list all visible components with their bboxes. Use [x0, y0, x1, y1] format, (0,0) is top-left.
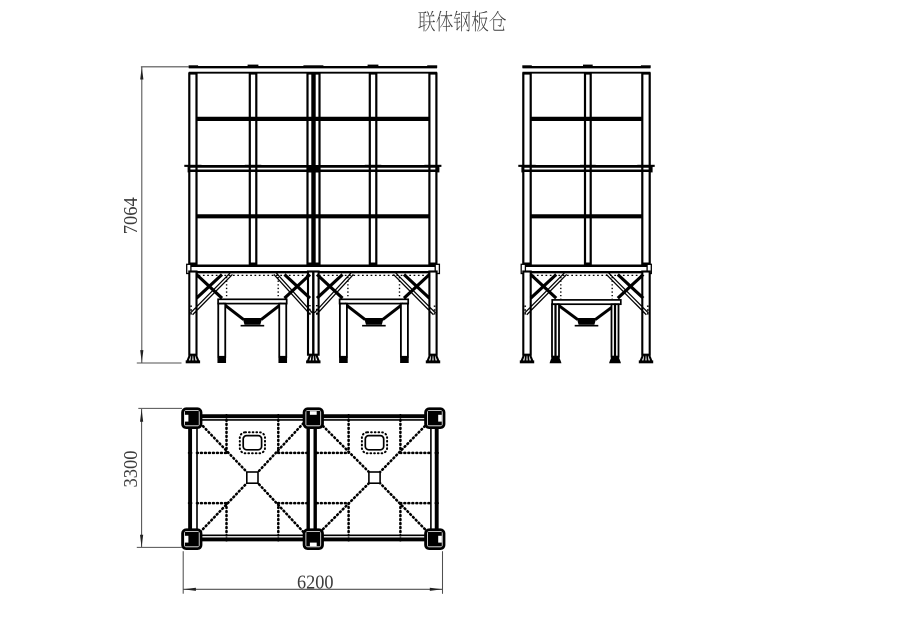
svg-text:6200: 6200 — [297, 571, 334, 593]
svg-text:7064: 7064 — [120, 197, 142, 234]
svg-text:3300: 3300 — [120, 451, 142, 488]
